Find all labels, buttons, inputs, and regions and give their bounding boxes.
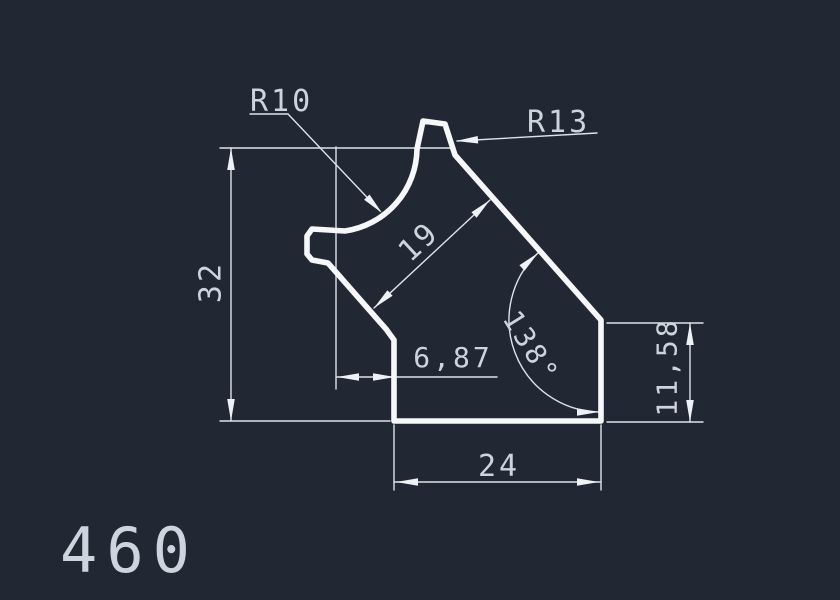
arrowhead-19-lower: [374, 290, 393, 308]
profile-number: 460: [60, 514, 199, 587]
arrowhead-687-left: [337, 373, 359, 381]
cad-canvas: R10 R13 32 19 6,87 138° 11,58 24 460: [0, 0, 840, 600]
label-radius-r10: R10: [250, 84, 313, 119]
label-width-24: 24: [478, 449, 520, 484]
arrowhead-24-left: [396, 478, 418, 486]
label-radius-r13: R13: [527, 105, 590, 140]
dimension-lines: [220, 114, 703, 490]
arrowhead-r10: [364, 195, 382, 214]
arrowhead-24-right: [577, 478, 599, 486]
arrowhead-1158-bottom: [686, 400, 694, 422]
arrowhead-angle-bottom: [577, 408, 599, 416]
label-thickness-19: 19: [392, 215, 447, 269]
arrowheads: [227, 136, 694, 486]
arrowhead-19-upper: [471, 200, 490, 218]
label-offset-687: 6,87: [413, 341, 492, 374]
arrowhead-angle-top: [519, 253, 538, 271]
label-right-height-1158: 11,58: [651, 317, 684, 416]
label-angle-138: 138°: [496, 305, 566, 390]
arrowhead-32-top: [227, 148, 235, 170]
dimension-labels: R10 R13 32 19 6,87 138° 11,58 24: [194, 84, 684, 484]
dim-19-dimension-line: [374, 200, 490, 308]
leader-r10-line: [288, 114, 380, 211]
arrowhead-r13: [456, 136, 478, 144]
arrowhead-1158-top: [686, 323, 694, 345]
technical-drawing: R10 R13 32 19 6,87 138° 11,58 24 460: [0, 0, 840, 600]
label-height-32: 32: [194, 261, 229, 303]
arrowhead-32-bottom: [227, 399, 235, 421]
